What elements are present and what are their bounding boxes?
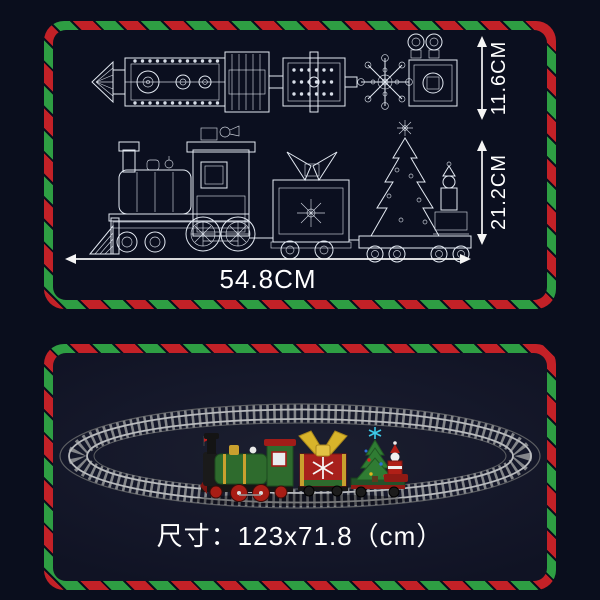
dimension-side-view-height: 21.2CM <box>477 140 510 245</box>
tree-wagon <box>351 427 408 497</box>
dimension-train-length: 54.8CM <box>65 254 471 294</box>
train-blueprint-drawing: 11.6CM 21.2CM 54.8CM <box>53 30 547 300</box>
track-photo-canvas: 尺寸：123x71.8（cm） <box>53 353 547 581</box>
top-view-height-label: 11.6CM <box>488 41 510 116</box>
train-side-view <box>90 120 471 262</box>
gift-wagon-side-view <box>271 152 351 259</box>
tree-star <box>369 427 381 439</box>
side-view-height-label: 21.2CM <box>488 154 510 230</box>
tree-top-view-snowflake <box>358 55 413 110</box>
dimension-diagram-panel: 11.6CM 21.2CM 54.8CM <box>44 21 556 309</box>
size-caption: 尺寸：123x71.8（cm） <box>53 516 547 553</box>
track-photo-panel: 尺寸：123x71.8（cm） <box>44 344 556 590</box>
dimension-top-view-height: 11.6CM <box>477 36 510 120</box>
tree-wagon-side-view <box>359 120 471 262</box>
train-shadow <box>192 494 408 506</box>
train-top-view <box>92 34 457 112</box>
dimension-diagram-canvas: 11.6CM 21.2CM 54.8CM <box>53 30 547 300</box>
train-length-label: 54.8CM <box>219 264 316 294</box>
gift-wagon <box>298 431 348 496</box>
santa-figure <box>384 441 408 482</box>
product-image: 11.6CM 21.2CM 54.8CM <box>0 0 600 600</box>
locomotive <box>200 433 296 502</box>
